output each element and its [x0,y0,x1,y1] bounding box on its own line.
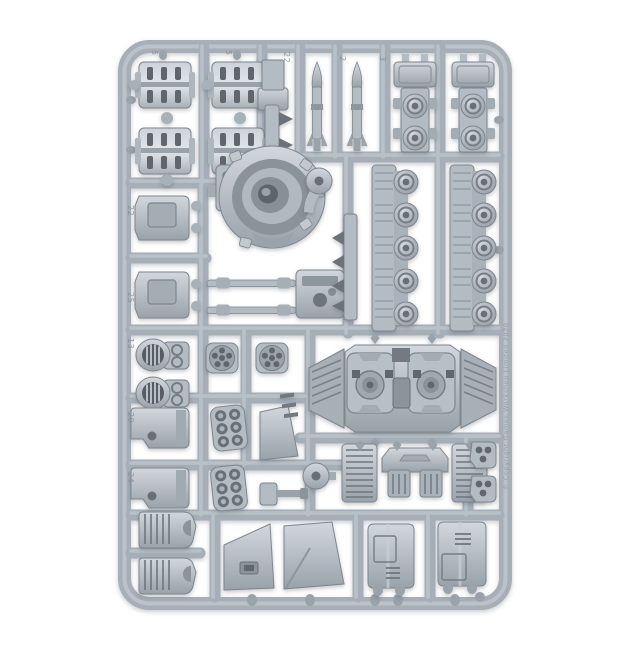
frame-number: 20 [126,412,135,423]
small-cannon [260,483,308,505]
exhaust-vent [139,558,196,594]
hull-side-door [438,522,486,594]
access-hatch [135,272,201,318]
roadwheel-carrier [450,165,496,331]
missile [347,62,368,151]
armour-skirt [284,522,344,589]
frame-number: 5 [224,50,233,56]
circular-vent [136,339,189,371]
axle-rod [207,278,296,289]
suspension-bogie [393,54,437,152]
frame-number: 22 [126,205,135,216]
wheel-hub [206,343,238,373]
armour-skirt [224,524,274,590]
missile [307,62,328,151]
hull-side-door [368,524,414,596]
access-hatch [135,196,201,240]
suspension-bogie [451,54,495,152]
frame-number: 13 [126,338,135,349]
mount-bracket [470,476,496,502]
exhaust-vent [139,512,196,548]
sprue-photo: 5 5 22 2 3 22 25 13 20 24 © Copyright Ga… [0,0,629,650]
frame-number: 3 [378,56,387,62]
axle-rod [207,305,296,316]
circular-vent [136,377,189,409]
copyright-text: © Copyright Games Workshop Limited 2020 [502,322,510,490]
smoke-launcher [210,464,248,511]
frame-number: 2 [338,56,347,62]
wheel-hub [256,343,288,373]
mount-bracket [470,442,496,468]
side-panel [131,408,189,448]
gun-mount [296,270,344,318]
radiator-grille [342,444,377,502]
roadwheel-carrier [372,165,418,331]
track-section [135,62,195,108]
frame-number: 22 [282,52,291,63]
rear-plate [382,448,448,497]
frame-number: 25 [126,292,135,303]
side-panel [131,468,189,508]
smoke-launcher [210,404,248,451]
frame-number: 5 [150,50,159,56]
track-section [135,128,195,174]
hull-roof [309,333,496,449]
frame-number: 24 [126,472,135,483]
product-photo: 5 5 22 2 3 22 25 13 20 24 © Copyright Ga… [0,0,629,650]
